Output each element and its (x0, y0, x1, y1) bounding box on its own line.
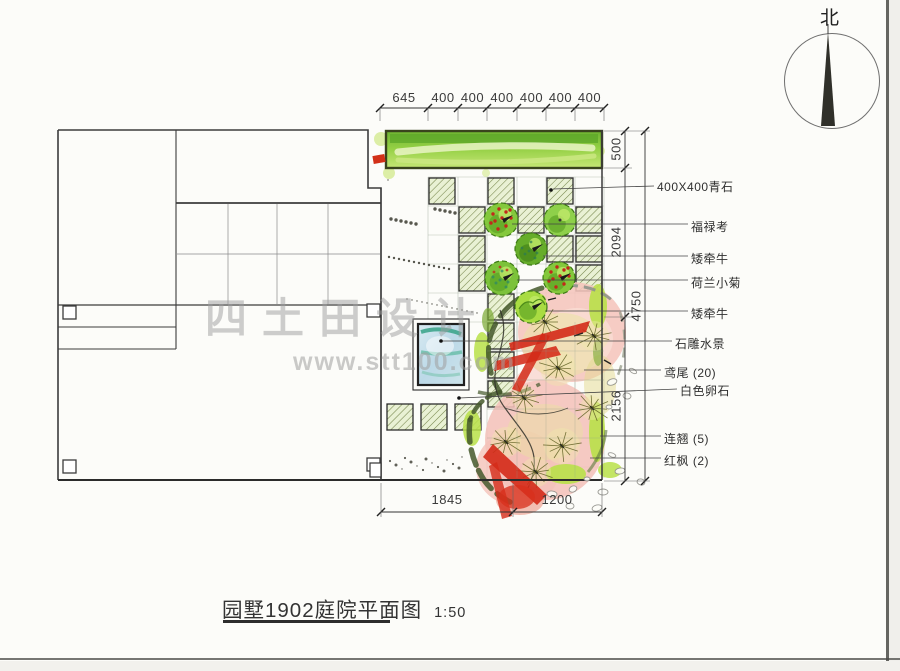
column (370, 463, 381, 477)
gravel-dot (416, 465, 417, 466)
plant-label: 矮牵牛 (691, 250, 729, 267)
gravel-dot (408, 260, 410, 262)
dim-label-top: 400 (490, 90, 513, 105)
berry-dot (504, 210, 507, 213)
pebble (584, 477, 590, 481)
leader-dot (439, 339, 443, 343)
plant-label: 石雕水景 (675, 335, 725, 352)
berry-dot (491, 212, 494, 215)
berry-dot (506, 269, 509, 272)
paving-stone (459, 236, 485, 262)
dim-label-top: 400 (549, 90, 572, 105)
shrub-teal (485, 261, 519, 295)
berry-dot (562, 268, 565, 271)
gravel-dot (387, 179, 388, 180)
gravel-dot (425, 458, 428, 461)
gravel-dot (433, 265, 435, 267)
plant-label: 荷兰小菊 (691, 274, 741, 291)
berry-dot (496, 227, 499, 230)
gravel-dot (389, 217, 392, 220)
gravel-dot (438, 208, 441, 211)
berry-dot (489, 221, 492, 224)
flower-dot (501, 270, 504, 273)
gravel-dot (438, 266, 440, 268)
paving-stone (488, 178, 514, 204)
gravel-dot (393, 257, 395, 259)
gravel-dot (404, 457, 406, 459)
gravel-dot (436, 304, 437, 305)
pebble (623, 392, 632, 399)
gravel-dot (398, 258, 400, 260)
plant-label: 福禄考 (691, 218, 729, 235)
gravel-dot (458, 467, 461, 470)
berry-dot (508, 208, 511, 211)
strip-shade (390, 134, 598, 143)
pebble (608, 452, 617, 458)
dim-label-right: 2094 (609, 227, 624, 258)
title-underline (223, 620, 390, 623)
berry-dot (566, 266, 569, 269)
leader-dot (549, 188, 553, 192)
dim-label-top: 645 (392, 90, 415, 105)
scanned-garden-plan-page: 6454004004004004004005002094215647501845… (0, 0, 900, 671)
dim-label-top: 400 (520, 90, 543, 105)
scan-edge-bottom (0, 658, 900, 660)
flower-dot (492, 276, 495, 279)
dim-label-right: 4750 (629, 291, 644, 322)
gravel-dot (466, 310, 467, 311)
plant-label: 矮牵牛 (691, 305, 729, 322)
paving-stone (459, 207, 485, 233)
paving-stone (421, 404, 447, 430)
pebble (629, 367, 638, 374)
leader-dot (457, 396, 461, 400)
scan-margin-bottom (0, 661, 900, 671)
gravel-dot (448, 268, 450, 270)
gravel-dot (452, 463, 454, 465)
berry-dot (554, 285, 557, 288)
paving-stone (387, 404, 413, 430)
gravel-dot (431, 462, 432, 463)
shrub-red (543, 262, 575, 294)
dim-label-top: 400 (461, 90, 484, 105)
gravel-dot (414, 222, 417, 225)
paving-stone (576, 207, 602, 233)
gravel-dot (404, 220, 407, 223)
column (63, 460, 76, 473)
gravel-dot (389, 460, 391, 462)
plant-label: 鸢尾 (20) (664, 364, 716, 381)
flower-dot (534, 257, 537, 260)
paving-stone (518, 207, 544, 233)
plant-label: 连翘 (5) (664, 430, 709, 447)
paving-stone (429, 178, 455, 204)
berry-dot (493, 271, 496, 274)
shrub-center-dot (559, 219, 562, 222)
red-wash (499, 485, 535, 509)
flower-dot (530, 241, 533, 244)
gravel-dot (443, 267, 445, 269)
shrub-plain (544, 204, 576, 236)
planting-strip (372, 131, 605, 179)
gravel-dot (409, 221, 412, 224)
berry-dot (493, 219, 496, 222)
gravel-dot (421, 301, 422, 302)
column (367, 304, 380, 317)
water-feature-pool (413, 319, 469, 390)
gravel-dot (413, 261, 415, 263)
pebble (598, 489, 608, 495)
gravel-dot (441, 305, 442, 306)
dim-label-right: 2156 (609, 391, 624, 422)
gravel-dot (456, 308, 457, 309)
gravel-dot (411, 299, 412, 300)
gravel-dot (431, 303, 432, 304)
flower-dot (507, 281, 510, 284)
gravel-dot (428, 264, 430, 266)
gravel-dot (401, 468, 402, 469)
dim-label-bottom: 1200 (542, 492, 573, 507)
plant-label: 白色卵石 (680, 382, 730, 399)
flower-dot (536, 252, 539, 255)
paving-stone (576, 236, 602, 262)
gravel-dot (399, 219, 402, 222)
plant-label: 红枫 (2) (664, 452, 709, 469)
shrub-dark (515, 233, 547, 265)
gravel-dot (410, 461, 413, 464)
shrub-red (484, 203, 518, 237)
flower-dot (524, 253, 527, 256)
gravel-dot (471, 311, 472, 312)
berry-dot (555, 265, 558, 268)
gravel-dot (423, 263, 425, 265)
dim-label-bottom: 1845 (432, 492, 463, 507)
gravel-dot (461, 309, 462, 310)
column (63, 306, 76, 319)
berry-dot (549, 270, 552, 273)
plant-label: 400X400青石 (657, 178, 734, 195)
dim-label-top: 400 (578, 90, 601, 105)
gravel-dot (426, 302, 427, 303)
flower-dot (505, 286, 508, 289)
scan-margin-right (889, 0, 900, 671)
paving-stone (459, 265, 485, 291)
gravel-dot (395, 464, 398, 467)
gravel-dot (422, 469, 424, 471)
flower-dot (521, 247, 524, 250)
flower-dot (495, 282, 498, 285)
green-wash (482, 169, 490, 177)
gravel-dot (443, 209, 446, 212)
red-marker (372, 154, 385, 164)
shrub-leafy (515, 291, 547, 323)
gravel-dot (388, 256, 390, 258)
dim-label-right: 500 (609, 137, 624, 160)
gravel-dot (406, 298, 407, 299)
gravel-dot (461, 456, 462, 457)
flower-dot (528, 250, 531, 253)
gravel-dot (448, 210, 451, 213)
gravel-dot (451, 307, 452, 308)
title-block: 园墅1902庭院平面图1:50 (222, 593, 466, 623)
gravel-dot (416, 300, 417, 301)
pebble (591, 504, 602, 512)
gravel-dot (446, 306, 447, 307)
gravel-dot (394, 218, 397, 221)
house-outline (58, 130, 381, 480)
drawing-scale: 1:50 (434, 605, 466, 621)
gravel-dot (418, 262, 420, 264)
berry-dot (562, 282, 565, 285)
water-highlight (426, 336, 454, 356)
berry-dot (504, 224, 507, 227)
dim-label-top: 400 (431, 90, 454, 105)
gravel-dot (437, 466, 439, 468)
drawing-title: 园墅1902庭院平面图 (222, 599, 422, 622)
berry-dot (499, 266, 502, 269)
compass-needle-icon (808, 20, 850, 132)
paving-stone (547, 236, 573, 262)
scan-edge-right (886, 0, 889, 671)
gravel-dot (443, 470, 446, 473)
gravel-dot (446, 459, 447, 460)
berry-dot (497, 207, 500, 210)
gravel-dot (403, 259, 405, 261)
gravel-dot (433, 207, 436, 210)
gravel-dot (453, 211, 456, 214)
flower-dot (499, 279, 502, 282)
gravel-dot (476, 312, 477, 313)
